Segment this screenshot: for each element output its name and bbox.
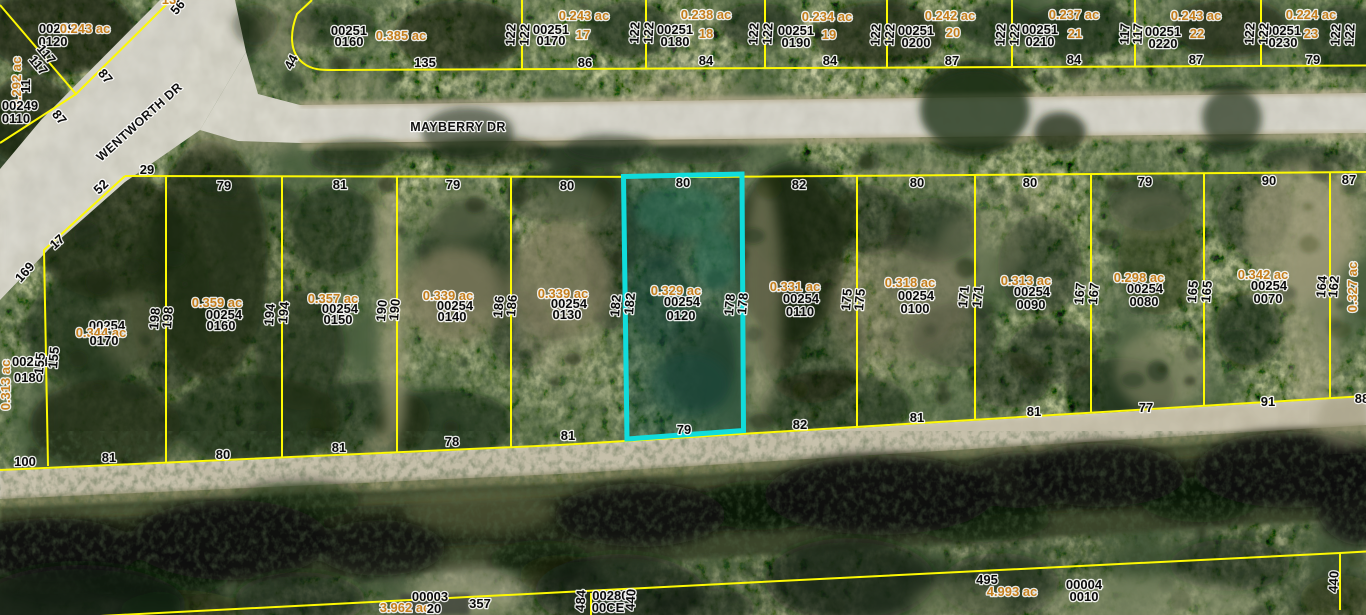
svg-text:122: 122	[881, 24, 897, 46]
svg-text:91: 91	[1261, 394, 1275, 409]
svg-text:122: 122	[1341, 24, 1357, 46]
svg-text:90: 90	[1262, 173, 1276, 188]
svg-text:00CE: 00CE	[592, 600, 625, 615]
svg-text:0.224 ac: 0.224 ac	[1286, 7, 1337, 22]
svg-text:357: 357	[469, 596, 491, 611]
svg-text:79: 79	[446, 177, 460, 192]
svg-text:0170: 0170	[90, 333, 119, 348]
svg-text:0.359 ac: 0.359 ac	[192, 295, 243, 310]
svg-text:84: 84	[699, 53, 714, 68]
svg-text:11: 11	[18, 79, 33, 93]
svg-text:87: 87	[1189, 52, 1203, 67]
svg-text:122: 122	[1255, 23, 1271, 45]
svg-text:190: 190	[386, 298, 403, 321]
svg-text:18: 18	[699, 26, 713, 41]
svg-text:80: 80	[1023, 175, 1037, 190]
svg-text:186: 186	[503, 294, 520, 317]
svg-text:84: 84	[823, 53, 838, 68]
svg-text:0010: 0010	[1070, 589, 1099, 604]
svg-text:100: 100	[14, 454, 36, 469]
svg-text:0130: 0130	[553, 307, 582, 322]
svg-text:0210: 0210	[1026, 34, 1055, 49]
svg-text:198: 198	[159, 306, 176, 329]
svg-text:178: 178	[734, 292, 751, 315]
svg-text:0110: 0110	[786, 304, 814, 319]
svg-text:0120: 0120	[667, 308, 696, 323]
svg-text:0100: 0100	[901, 301, 930, 316]
svg-text:0.357 ac: 0.357 ac	[308, 291, 359, 306]
svg-text:194: 194	[275, 300, 292, 324]
svg-text:167: 167	[1085, 282, 1102, 305]
svg-text:135: 135	[414, 55, 436, 70]
svg-text:86: 86	[578, 55, 592, 70]
svg-text:0170: 0170	[537, 33, 566, 48]
svg-text:3.962 ac: 3.962 ac	[380, 600, 431, 615]
svg-text:79: 79	[1306, 52, 1320, 67]
svg-text:117: 117	[1129, 23, 1145, 45]
svg-text:0.339 ac: 0.339 ac	[538, 286, 589, 301]
svg-text:0.243 ac: 0.243 ac	[60, 21, 111, 36]
svg-text:171: 171	[969, 285, 986, 308]
svg-text:82: 82	[793, 417, 807, 432]
svg-text:440: 440	[622, 589, 638, 611]
svg-text:162: 162	[1325, 275, 1342, 298]
svg-text:0160: 0160	[335, 34, 364, 49]
svg-text:122: 122	[516, 24, 532, 46]
svg-text:81: 81	[910, 410, 924, 425]
svg-text:484: 484	[572, 589, 588, 612]
svg-text:0.313 ac: 0.313 ac	[1001, 273, 1052, 288]
svg-text:79: 79	[1138, 174, 1152, 189]
svg-text:0160: 0160	[207, 318, 236, 333]
svg-text:0.238 ac: 0.238 ac	[681, 7, 732, 22]
svg-text:0.243 ac: 0.243 ac	[1171, 8, 1222, 23]
svg-text:0080: 0080	[1130, 294, 1159, 309]
svg-text:13: 13	[162, 0, 176, 7]
svg-text:0200: 0200	[902, 35, 931, 50]
svg-text:0140: 0140	[438, 309, 467, 324]
svg-text:87: 87	[945, 53, 959, 68]
svg-text:0.243 ac: 0.243 ac	[559, 8, 610, 23]
svg-text:0.331 ac: 0.331 ac	[770, 279, 821, 294]
svg-text:79: 79	[677, 422, 691, 437]
svg-text:0.242 ac: 0.242 ac	[925, 8, 976, 23]
svg-text:0.385 ac: 0.385 ac	[376, 28, 427, 43]
svg-text:88: 88	[1355, 391, 1366, 406]
svg-text:0220: 0220	[1149, 36, 1178, 51]
svg-text:165: 165	[1198, 280, 1215, 303]
svg-text:84: 84	[1067, 52, 1082, 67]
svg-text:0.342 ac: 0.342 ac	[1238, 267, 1289, 282]
svg-text:0.237 ac: 0.237 ac	[1049, 7, 1100, 22]
svg-text:122: 122	[640, 22, 656, 44]
svg-text:0150: 0150	[324, 312, 353, 327]
svg-text:155: 155	[45, 346, 62, 369]
svg-text:81: 81	[333, 177, 347, 192]
svg-text:0110: 0110	[2, 111, 30, 126]
svg-text:MAYBERRY DR: MAYBERRY DR	[410, 120, 506, 134]
svg-text:0.298 ac: 0.298 ac	[1114, 270, 1165, 285]
svg-text:80: 80	[910, 175, 924, 190]
svg-text:79: 79	[217, 178, 231, 193]
svg-text:0.339 ac: 0.339 ac	[423, 288, 474, 303]
svg-text:80: 80	[216, 447, 230, 462]
svg-text:81: 81	[102, 450, 116, 465]
svg-text:87: 87	[1342, 172, 1356, 187]
svg-text:0230: 0230	[1269, 35, 1298, 50]
svg-text:19: 19	[822, 27, 836, 42]
svg-text:20: 20	[427, 601, 441, 615]
svg-text:17: 17	[576, 27, 590, 42]
svg-text:122: 122	[759, 23, 775, 45]
svg-text:122: 122	[1006, 24, 1022, 46]
svg-text:0180: 0180	[661, 34, 690, 49]
svg-text:81: 81	[1027, 404, 1041, 419]
svg-text:0.318 ac: 0.318 ac	[885, 275, 936, 290]
svg-text:77: 77	[1139, 400, 1153, 415]
svg-text:80: 80	[560, 178, 574, 193]
svg-text:4.993 ac: 4.993 ac	[987, 584, 1038, 599]
svg-text:78: 78	[445, 434, 459, 449]
svg-text:82: 82	[792, 177, 806, 192]
svg-text:81: 81	[561, 428, 575, 443]
svg-text:0.327 ac: 0.327 ac	[1345, 262, 1360, 313]
svg-text:0090: 0090	[1017, 297, 1046, 312]
svg-text:23: 23	[1304, 26, 1318, 41]
svg-text:0070: 0070	[1254, 291, 1283, 306]
svg-text:440: 440	[1325, 571, 1341, 593]
svg-text:81: 81	[332, 440, 346, 455]
svg-text:20: 20	[946, 25, 960, 40]
svg-text:0.234 ac: 0.234 ac	[802, 9, 853, 24]
svg-text:80: 80	[676, 175, 690, 190]
svg-text:182: 182	[621, 292, 638, 315]
svg-text:22: 22	[1190, 26, 1204, 41]
svg-text:0190: 0190	[782, 35, 811, 50]
svg-text:175: 175	[851, 288, 868, 311]
svg-text:21: 21	[1068, 26, 1082, 41]
svg-text:29: 29	[140, 162, 154, 177]
svg-text:0.329 ac: 0.329 ac	[651, 283, 702, 298]
